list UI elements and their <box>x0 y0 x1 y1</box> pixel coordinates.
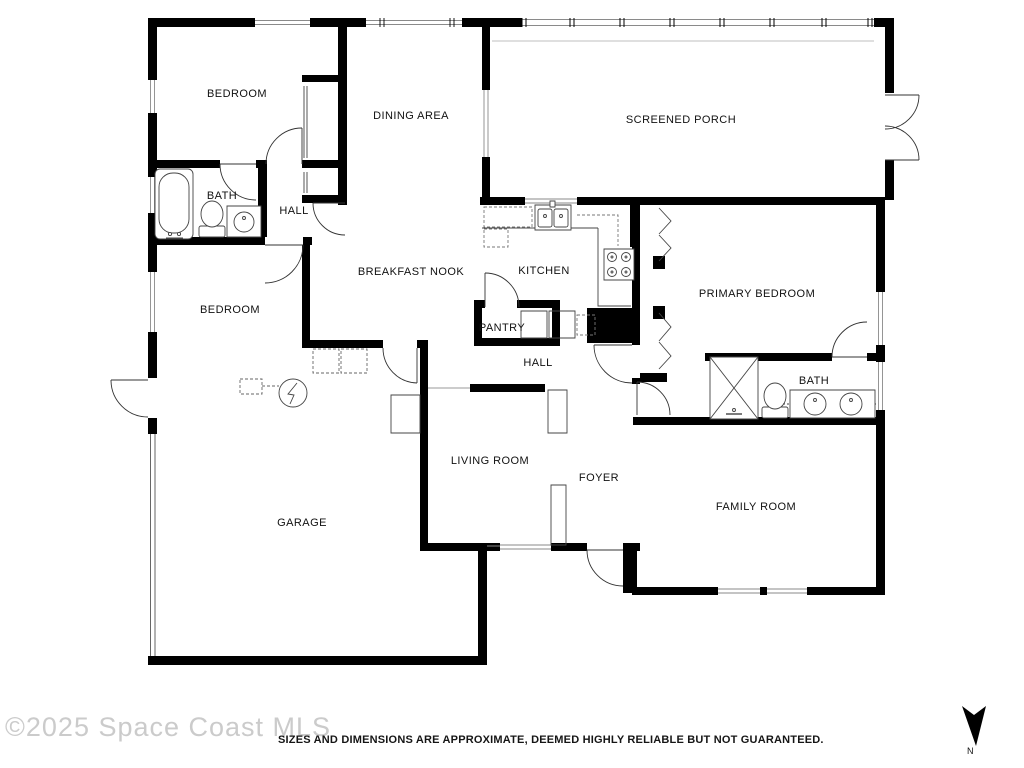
north-arrow <box>962 706 986 746</box>
primary-bedroom-door <box>594 345 632 383</box>
washer <box>313 349 339 373</box>
front-door <box>587 550 623 586</box>
bedroom1-door <box>266 128 302 164</box>
bedroom1-closet-slider <box>304 86 307 158</box>
floor-plan-drawing <box>0 0 1024 768</box>
stove <box>604 249 634 280</box>
vanity-double-sink <box>783 390 876 418</box>
hall-upper-door <box>313 203 345 235</box>
side-exterior-door <box>111 380 148 417</box>
bathtub <box>155 169 193 239</box>
bath-bedroom-door <box>832 322 867 357</box>
vanity-sink-1 <box>227 206 261 237</box>
bedroom2-door <box>265 245 303 283</box>
water-heater <box>240 379 307 407</box>
bath1-door <box>220 164 256 200</box>
pantry-door <box>485 273 519 307</box>
shower <box>710 357 758 419</box>
garage-entry-door <box>383 348 417 383</box>
hall-closet-slider <box>304 172 307 193</box>
windows <box>148 18 885 595</box>
toilet-2 <box>762 383 788 418</box>
dryer <box>341 349 367 373</box>
interior-walls <box>148 18 885 593</box>
garage-door <box>151 434 156 656</box>
bifold-closet-doors <box>659 208 671 369</box>
kitchen-sink <box>535 201 571 230</box>
floor-plan-page: BEDROOM DINING AREA SCREENED PORCH BATH … <box>0 0 1024 768</box>
primary-bath-door <box>637 382 670 415</box>
toilet-1 <box>199 201 225 237</box>
